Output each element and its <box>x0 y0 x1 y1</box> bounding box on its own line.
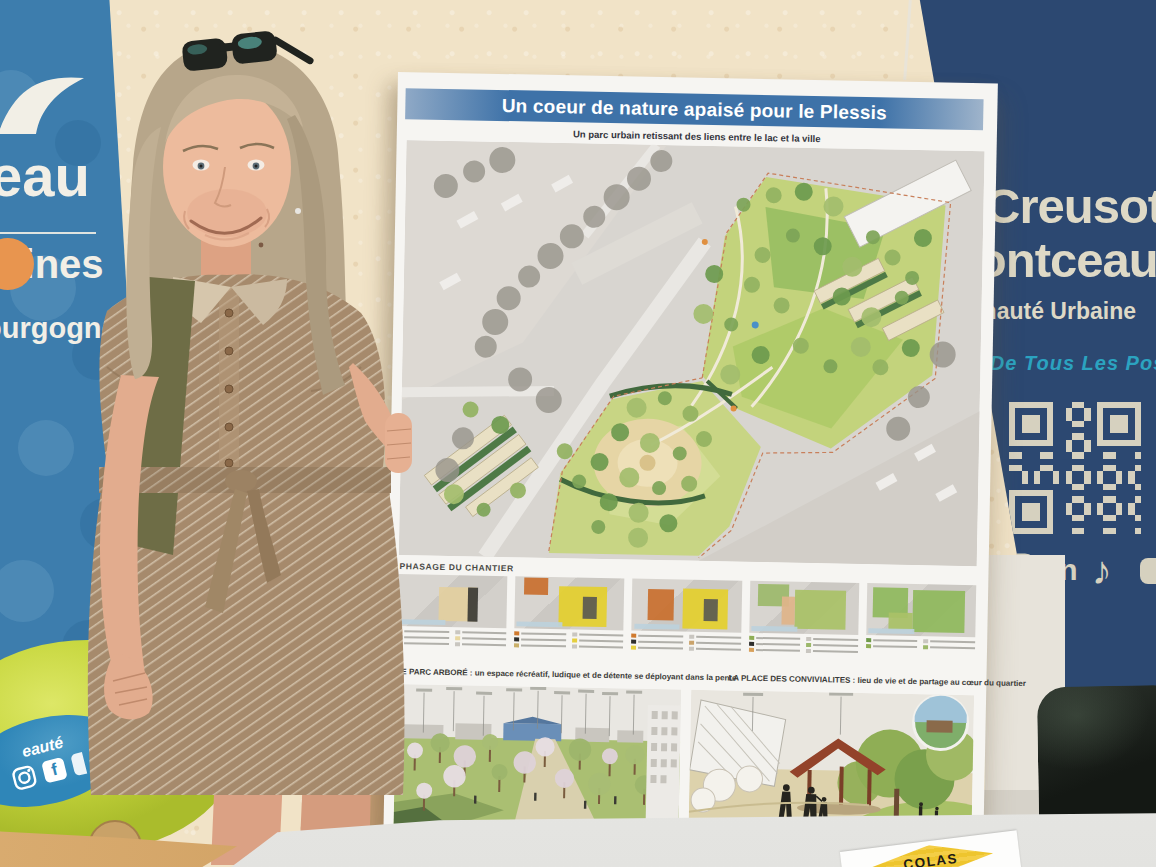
banner-hanging-string <box>903 0 911 80</box>
youtube-icon <box>1126 555 1156 585</box>
park-render <box>394 684 682 829</box>
banner-word-creusot: Creusot <box>985 178 1156 234</box>
tiktok-icon: ♪ <box>1092 553 1112 587</box>
phase-thumb-4 <box>748 581 859 665</box>
phasage-label: PHASAGE DU CHANTIER <box>399 561 514 573</box>
site-plan <box>399 140 985 566</box>
phasing-thumbnails <box>397 574 976 667</box>
phase-thumb-2 <box>514 576 625 660</box>
photo-scene: Creusot Montceau Communauté Urbaine Terr… <box>0 0 1156 867</box>
colas-label: COLAS <box>903 850 959 867</box>
poster-title-bar: Un coeur de nature apaisé pour le Plessi… <box>405 88 983 130</box>
section-title-parc: LE PARC ARBORÉ : un espace récréatif, lu… <box>396 667 736 683</box>
office-chair <box>1037 685 1156 833</box>
phase-thumb-5 <box>866 583 977 667</box>
plaza-render <box>689 690 975 835</box>
poster-title: Un coeur de nature apaisé pour le Plessi… <box>502 95 888 124</box>
qr-code <box>1009 402 1141 534</box>
phase-thumb-3 <box>631 579 742 663</box>
person <box>55 15 415 865</box>
section-title-place: LA PLACE DES CONVIVIALITES : lieu de vie… <box>728 673 1026 688</box>
urban-park-poster: Un coeur de nature apaisé pour le Plessi… <box>383 72 998 846</box>
instagram-icon <box>10 763 39 792</box>
